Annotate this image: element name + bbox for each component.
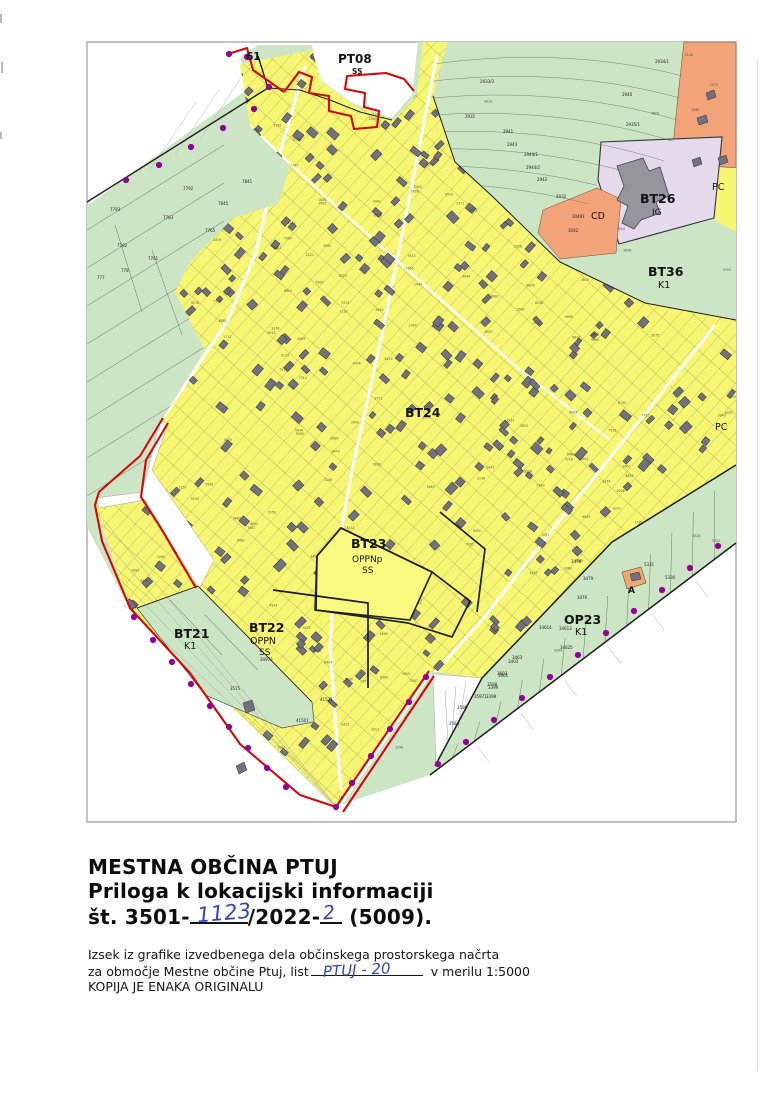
zone-label-k1: K1 — [575, 627, 587, 638]
boundary-marker-dot — [631, 608, 637, 614]
micro-number: 6994 — [569, 411, 577, 415]
reference-number-line: št. 3501-1123/2022-2(5009). — [88, 904, 688, 929]
blank-field-number: 1123 — [190, 904, 248, 924]
micro-number: 8151 — [314, 649, 322, 653]
boundary-marker-dot — [245, 745, 251, 751]
micro-number: 5015 — [469, 208, 477, 212]
boundary-marker-dot — [715, 543, 721, 549]
blank-field-suffix: 2 — [320, 904, 342, 924]
micro-number: 9312 — [712, 539, 720, 543]
micro-number: 3560 — [323, 244, 331, 248]
micro-number: 9291 — [613, 506, 621, 510]
micro-number: 9150 — [268, 510, 276, 514]
micro-number: 6835 — [625, 474, 633, 478]
boundary-marker-dot — [603, 630, 609, 636]
micro-number: 3933 — [506, 418, 514, 422]
boundary-marker-dot — [547, 674, 553, 680]
micro-number: 4593 — [297, 337, 305, 341]
parcel-number: 7763 — [163, 215, 174, 220]
micro-number: 4346 — [353, 361, 361, 365]
micro-number: 2221 — [306, 253, 314, 257]
micro-number: 4533 — [445, 192, 453, 196]
micro-number: 7340 — [409, 323, 417, 327]
parcel-number: 3479 — [583, 576, 594, 581]
parcel-number: 2932 — [556, 194, 567, 199]
micro-number: 3687 — [233, 516, 241, 520]
boundary-marker-dot — [659, 587, 665, 593]
micro-number: 5796 — [411, 190, 419, 194]
parcel-number: 2944/1 — [524, 152, 539, 157]
micro-number: 3633 — [581, 278, 589, 282]
micro-number: 9347 — [486, 465, 494, 469]
municipality-title: MESTNA OBČINA PTUJ — [88, 855, 688, 879]
parcel-number: 7793 — [110, 207, 121, 212]
zone-label-bt23: BT23 — [351, 536, 386, 551]
scan-speck — [0, 132, 2, 139]
zone-label-ss: SS — [362, 566, 374, 576]
micro-number: 7613 — [407, 254, 415, 258]
micro-number: 1717 — [386, 285, 394, 289]
boundary-marker-dot — [156, 162, 162, 168]
zone-label-pc: PC — [715, 422, 728, 433]
parcel-number: 2940 — [622, 92, 633, 97]
boundary-marker-dot — [387, 726, 393, 732]
micro-number: 2121 — [288, 221, 296, 225]
micro-number: 6830 — [527, 283, 535, 287]
micro-number: 8999 — [330, 437, 338, 441]
boundary-marker-dot — [406, 699, 412, 705]
micro-number: 9312 — [341, 722, 349, 726]
micro-number: 4037 — [725, 411, 733, 415]
boundary-marker-dot — [226, 51, 232, 57]
parcel-number: 3463 — [512, 655, 523, 660]
boundary-marker-dot — [150, 637, 156, 643]
micro-number: 2090 — [691, 108, 699, 112]
micro-number: 7409 — [315, 281, 323, 285]
zone-label-a: A — [628, 586, 635, 596]
micro-number: 9482 — [273, 246, 281, 250]
parcel-number: 3042 — [568, 228, 579, 233]
handwritten-suffix: 2 — [322, 901, 336, 926]
handwritten-sheet-name: PTUJ - 20 — [322, 961, 390, 980]
micro-number: 7095 — [466, 543, 474, 547]
parcel-number: 7792 — [183, 186, 194, 191]
parcel-number: 5331 — [644, 562, 655, 567]
micro-number: 8151 — [347, 526, 355, 530]
boundary-marker-dot — [188, 144, 194, 150]
parcel-number: 3398 — [486, 694, 497, 699]
micro-number: 6278 — [191, 301, 199, 305]
micro-number: 6528 — [374, 213, 382, 217]
micro-number: 3815 — [520, 424, 528, 428]
micro-number: 7402 — [414, 185, 422, 189]
micro-number: 7314 — [299, 376, 307, 380]
boundary-marker-dot — [266, 84, 272, 90]
micro-number: 9251 — [473, 529, 481, 533]
micro-number: 5722 — [341, 301, 349, 305]
boundary-marker-dot — [207, 703, 213, 709]
boundary-marker-dot — [188, 681, 194, 687]
micro-number: 1828 — [372, 463, 380, 467]
parcel-number: 34625 — [560, 645, 573, 650]
micro-number: 3441 — [533, 321, 541, 325]
parcel-number: 2943 — [507, 142, 518, 147]
micro-number: 6328 — [692, 534, 700, 538]
micro-number: 1443 — [414, 283, 422, 287]
micro-number: 5075 — [651, 333, 659, 337]
micro-number: 3222 — [280, 367, 288, 371]
boundary-marker-dot — [463, 739, 469, 745]
zone-label-k1: K1 — [658, 280, 670, 291]
micro-number: 3430 — [345, 677, 353, 681]
zone-label-oppnp: OPPNp — [352, 555, 383, 565]
parcel-number: 7845 — [218, 201, 229, 206]
micro-number: 1915 — [402, 672, 410, 676]
micro-number: 3360 — [564, 567, 572, 571]
micro-number: 9941 — [373, 200, 381, 204]
micro-number: 2528 — [514, 244, 522, 248]
micro-number: 9704 — [723, 268, 731, 272]
micro-number: 1690 — [380, 632, 388, 636]
caption-block: MESTNA OBČINA PTUJ Priloga k lokacijski … — [88, 855, 688, 995]
blank-field-sheet: PTUJ - 20 — [311, 963, 423, 976]
micro-number: 1415 — [529, 571, 537, 575]
micro-number: 4359 — [213, 238, 221, 242]
scan-speck — [1, 62, 3, 73]
micro-number: 5155 — [191, 497, 199, 501]
micro-number: 7455 — [642, 414, 650, 418]
micro-number: 7767 — [290, 164, 298, 168]
parcel-number: 35971 — [474, 694, 487, 699]
zone-label-pc: PC — [712, 182, 725, 193]
micro-number: 4609 — [651, 111, 659, 115]
micro-number: 9022 — [267, 331, 275, 335]
parcel-number: 3478 — [571, 559, 582, 564]
micro-number: 7661 — [247, 526, 255, 530]
micro-number: 8954 — [284, 289, 292, 293]
boundary-marker-dot — [169, 659, 175, 665]
micro-number: 1106 — [324, 478, 332, 482]
micro-number: 6882 — [219, 319, 227, 323]
zone-label-bt24: BT24 — [405, 405, 441, 420]
micro-number: 4933 — [269, 603, 277, 607]
micro-number: 7593 — [731, 395, 739, 399]
micro-number: 2191 — [425, 162, 433, 166]
zone-label-bt21: BT21 — [174, 626, 209, 641]
micro-number: 7795 — [213, 299, 221, 303]
reference-prefix: št. 3501- — [88, 905, 190, 929]
micro-number: 2443 — [537, 483, 545, 487]
micro-number: 9562 — [375, 308, 383, 312]
micro-number: 8214 — [384, 357, 392, 361]
parcel-number: 3584 — [449, 721, 460, 726]
zone-label-ss: SS — [259, 648, 271, 658]
micro-number: 4206 — [616, 489, 624, 493]
micro-number: 5898 — [623, 248, 631, 252]
sheet-label: za območje Mestne občine Ptuj, list — [88, 964, 309, 979]
parcel-number: 2942 — [537, 177, 548, 182]
micro-number: 7146 — [685, 53, 693, 57]
micro-number: 6606 — [591, 332, 599, 336]
boundary-marker-dot — [264, 765, 270, 771]
boundary-marker-dot — [423, 674, 429, 680]
parcel-number: 3598 — [487, 682, 498, 687]
micro-number: 7967 — [284, 236, 292, 240]
micro-number: 2607 — [622, 465, 630, 469]
zone-label-op23: OP23 — [564, 612, 601, 627]
micro-number: 8081 — [491, 295, 499, 299]
parcel-number: 2934/1 — [655, 59, 670, 64]
parcel-number: 3476 — [577, 595, 588, 600]
parcel-number: 777 — [97, 275, 105, 280]
micro-number: 7132 — [339, 309, 347, 313]
parcel-number: 778 — [121, 268, 129, 273]
copy-statement: KOPIJA JE ENAKA ORIGINALU — [88, 979, 688, 995]
micro-number: 9613 — [484, 99, 492, 103]
scan-speck — [0, 14, 2, 23]
micro-number: 9376 — [271, 326, 279, 330]
zone-label-pt08: PT08 — [338, 52, 372, 66]
scan-fold-line — [757, 60, 758, 1070]
micro-number: 8160 — [380, 676, 388, 680]
micro-number: 9670 — [332, 449, 340, 453]
micro-number: 5504 — [617, 227, 625, 231]
micro-number: 5347 — [410, 679, 418, 683]
micro-number: 3943 — [718, 414, 726, 418]
micro-number: 8604 — [324, 661, 332, 665]
boundary-marker-dot — [435, 761, 441, 767]
reference-year: /2022- — [248, 905, 320, 929]
micro-number: 3667 — [427, 485, 435, 489]
micro-number: 6595 — [140, 579, 148, 583]
attachment-title: Priloga k lokacijski informaciji — [88, 879, 688, 903]
micro-number: 1146 — [477, 476, 485, 480]
zone-label-cd: CD — [591, 211, 605, 222]
micro-number: 5462 — [567, 453, 575, 457]
micro-number: 7509 — [608, 428, 616, 432]
parcel-number: 30491 — [572, 214, 585, 219]
boundary-marker-dot — [349, 780, 355, 786]
handwritten-case-number: 1123 — [196, 899, 252, 928]
micro-number: 9483 — [237, 538, 245, 542]
micro-number: 1334 — [602, 479, 610, 483]
parcel-number: 7841 — [242, 179, 253, 184]
micro-number: 9963 — [591, 338, 599, 342]
boundary-marker-dot — [575, 652, 581, 658]
micro-number: 2590 — [516, 308, 524, 312]
parcel-number: 34614 — [539, 625, 552, 630]
micro-number: 4449 — [462, 274, 470, 278]
parcel-number: 2935/1 — [626, 122, 641, 127]
parcel-number: 3603 — [497, 671, 508, 676]
description-block: Izsek iz grafike izvedbenega dela občins… — [88, 947, 688, 995]
boundary-marker-dot — [333, 804, 339, 810]
micro-number: 2271 — [456, 201, 464, 205]
boundary-marker-dot — [123, 177, 129, 183]
micro-number: 1260 — [157, 555, 165, 559]
micro-number: 5699 — [565, 315, 573, 319]
parcel-number: 7765 — [205, 228, 216, 233]
micro-number: 1900 — [369, 117, 377, 121]
micro-number: 8735 — [618, 401, 626, 405]
micro-number: 8250 — [535, 301, 543, 305]
boundary-marker-dot — [251, 106, 257, 112]
micro-number: 3356 — [405, 267, 413, 271]
micro-number: 1712 — [223, 335, 231, 339]
parcel-number: 7782 — [117, 243, 128, 248]
micro-number: 3356 — [395, 746, 403, 750]
micro-number: 7505 — [318, 202, 326, 206]
micro-number: 8957 — [485, 330, 493, 334]
boundary-marker-dot — [519, 695, 525, 701]
micro-number: 5328 — [524, 469, 532, 473]
description-line-2: za območje Mestne občine Ptuj, listPTUJ … — [88, 963, 688, 980]
boundary-marker-dot — [283, 784, 289, 790]
zone-label-oppn: OPPN — [250, 636, 276, 647]
micro-number: 3842 — [351, 420, 359, 424]
micro-number: 1539 — [537, 544, 545, 548]
micro-number: 4472 — [303, 626, 311, 630]
boundary-marker-dot — [220, 125, 226, 131]
boundary-marker-dot — [226, 724, 232, 730]
parcel-number: 5330 — [665, 575, 676, 580]
zone-label-bt26: BT26 — [640, 191, 676, 206]
micro-number: 7473 — [710, 83, 718, 87]
micro-number: 2897 — [131, 569, 139, 573]
parcel-number: 41501 — [296, 718, 309, 723]
boundary-marker-dot — [491, 717, 497, 723]
micro-number: 8325 — [339, 274, 347, 278]
zone-label-bt22: BT22 — [249, 620, 284, 635]
micro-number: 5099 — [205, 483, 213, 487]
micro-number: 5044 — [295, 429, 303, 433]
micro-number: 9721 — [375, 397, 383, 401]
parcel-number: 2931 — [465, 114, 476, 119]
micro-number: 9173 — [281, 354, 289, 358]
parcel-number: 3575 — [230, 686, 241, 691]
parcel-number: 2944/2 — [526, 165, 541, 170]
parcel-number: 3586 — [457, 705, 468, 710]
zone-label-61: 61 — [246, 51, 261, 63]
micro-number: 6965 — [582, 515, 590, 519]
zone-label-k1: K1 — [184, 641, 196, 652]
reference-code: (5009). — [349, 905, 432, 929]
zone-label-ss: SS — [352, 67, 362, 76]
zone-label-ig: IG — [652, 208, 662, 218]
parcel-number: 2941 — [503, 129, 514, 134]
micro-number: 1157 — [179, 486, 187, 490]
zone-label-bt36: BT36 — [648, 264, 684, 279]
micro-number: 5192 — [273, 124, 281, 128]
parcel-number: 7761 — [148, 256, 159, 261]
boundary-marker-dot — [368, 753, 374, 759]
micro-number: 1212 — [292, 137, 300, 141]
micro-number: 4311 — [371, 728, 379, 732]
parcel-number: 2933/3 — [480, 79, 495, 84]
parcel-number: 41521 — [320, 697, 333, 702]
boundary-marker-dot — [687, 565, 693, 571]
micro-number: 5579 — [224, 438, 232, 442]
micro-number: 2091 — [541, 533, 549, 537]
boundary-marker-dot — [131, 614, 137, 620]
micro-number: 5404 — [580, 457, 588, 461]
micro-number: 5716 — [565, 457, 573, 461]
scale-label: v merilu 1:5000 — [431, 964, 530, 979]
micro-number: 6637 — [572, 336, 580, 340]
